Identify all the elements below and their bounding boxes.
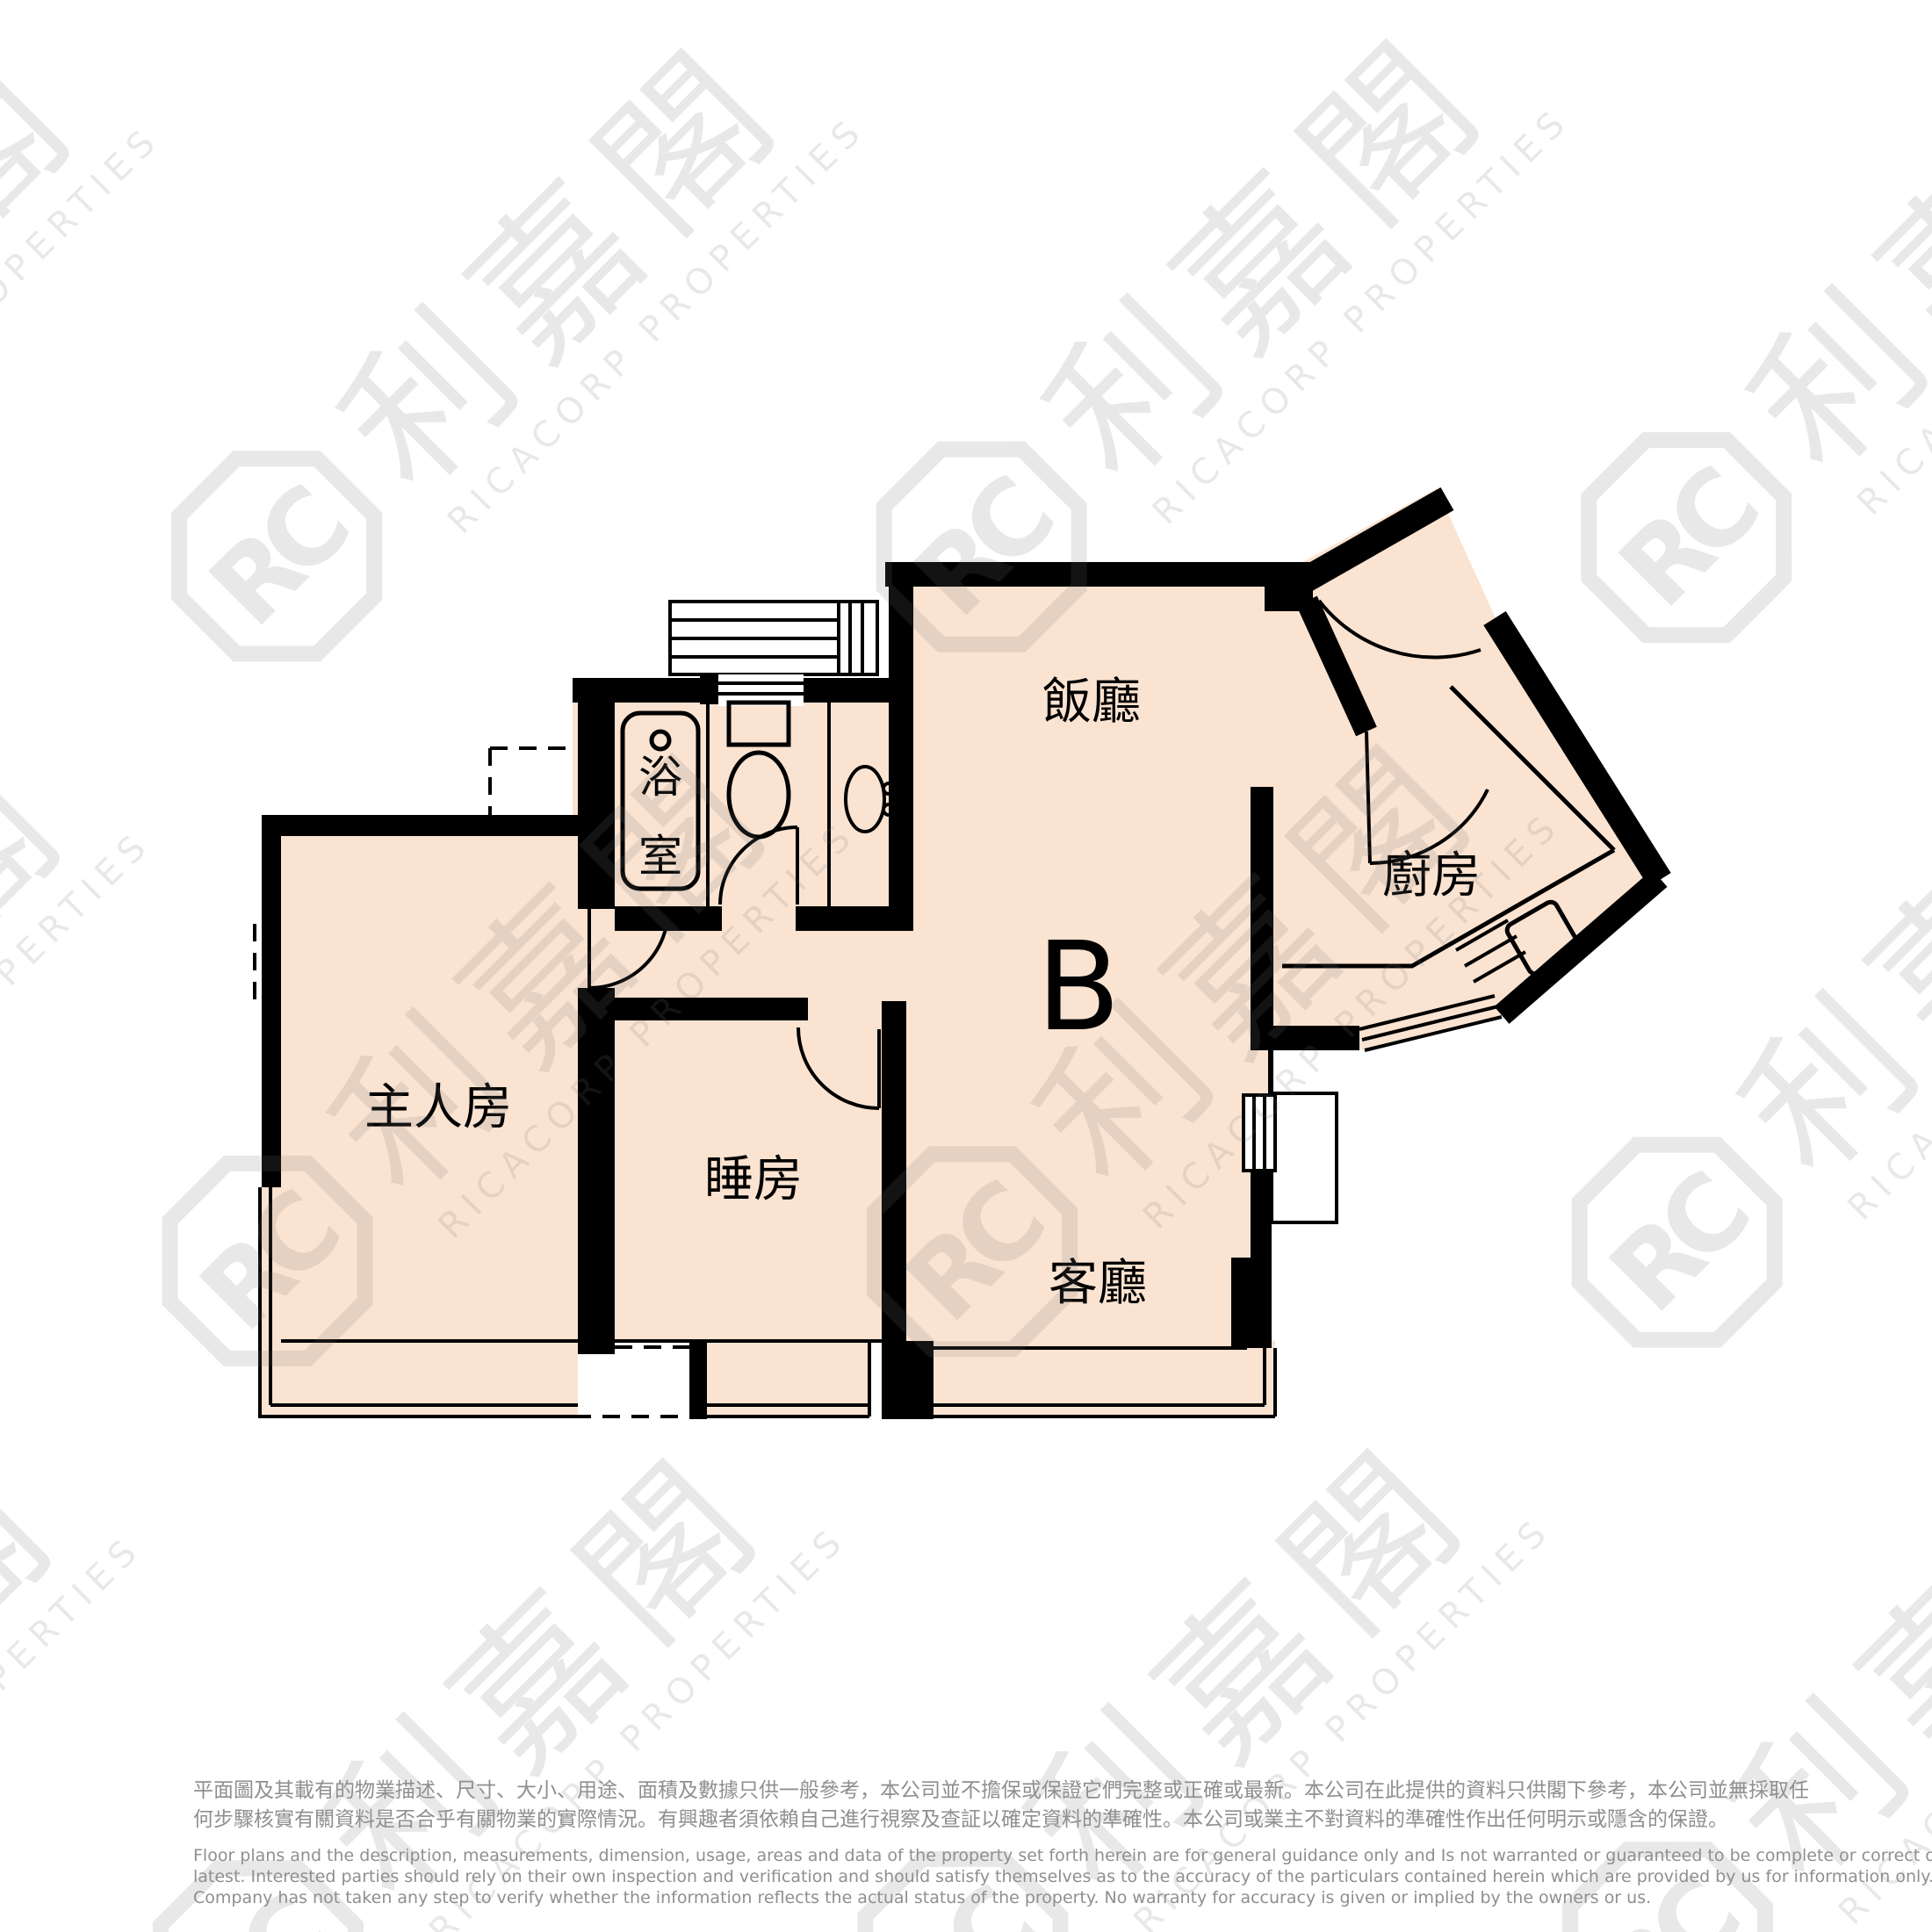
watermark-instance [0, 693, 160, 1428]
disclaimer-en-line1: Floor plans and the description, measure… [193, 1846, 1932, 1865]
wall-living-right [1251, 1171, 1272, 1258]
wall-master-left [262, 815, 281, 1187]
watermark-instance [0, 0, 178, 18]
wall-bedroom-bay-pier [689, 1341, 707, 1419]
wall-master-top [262, 815, 587, 836]
disclaimer-en-line2: latest. Interested parties should rely o… [193, 1867, 1932, 1886]
disclaimer-zh-line1: 平面圖及其載有的物業描述、尺寸、大小、用途、面積及數據只供一般參考，本公司並不擔… [193, 1779, 1809, 1802]
room-label-bedroom: 睡房 [704, 1151, 803, 1208]
disclaimer-en-line3: Company has not taken any step to verify… [193, 1888, 1651, 1907]
wall-bath-bottom-right [796, 906, 913, 931]
floorplan-page: RC 利嘉閣 RICACORP PROPERTIES [0, 0, 1932, 1932]
watermark-instance [0, 1398, 150, 1932]
floor-plan-canvas: RC 利嘉閣 RICACORP PROPERTIES [0, 0, 1932, 1932]
room-label-dining: 飯廳 [1042, 674, 1141, 731]
wall-living-right-stub [1231, 1258, 1272, 1348]
watermark-instance [0, 0, 169, 724]
watermark-instance [148, 0, 883, 9]
disclaimer-zh-line2: 何步驟核實有關資料是否合乎有關物業的實際情況。有興趣者須依賴自己進行視察及查証以… [193, 1808, 1728, 1831]
watermark-instance [1548, 0, 1932, 696]
